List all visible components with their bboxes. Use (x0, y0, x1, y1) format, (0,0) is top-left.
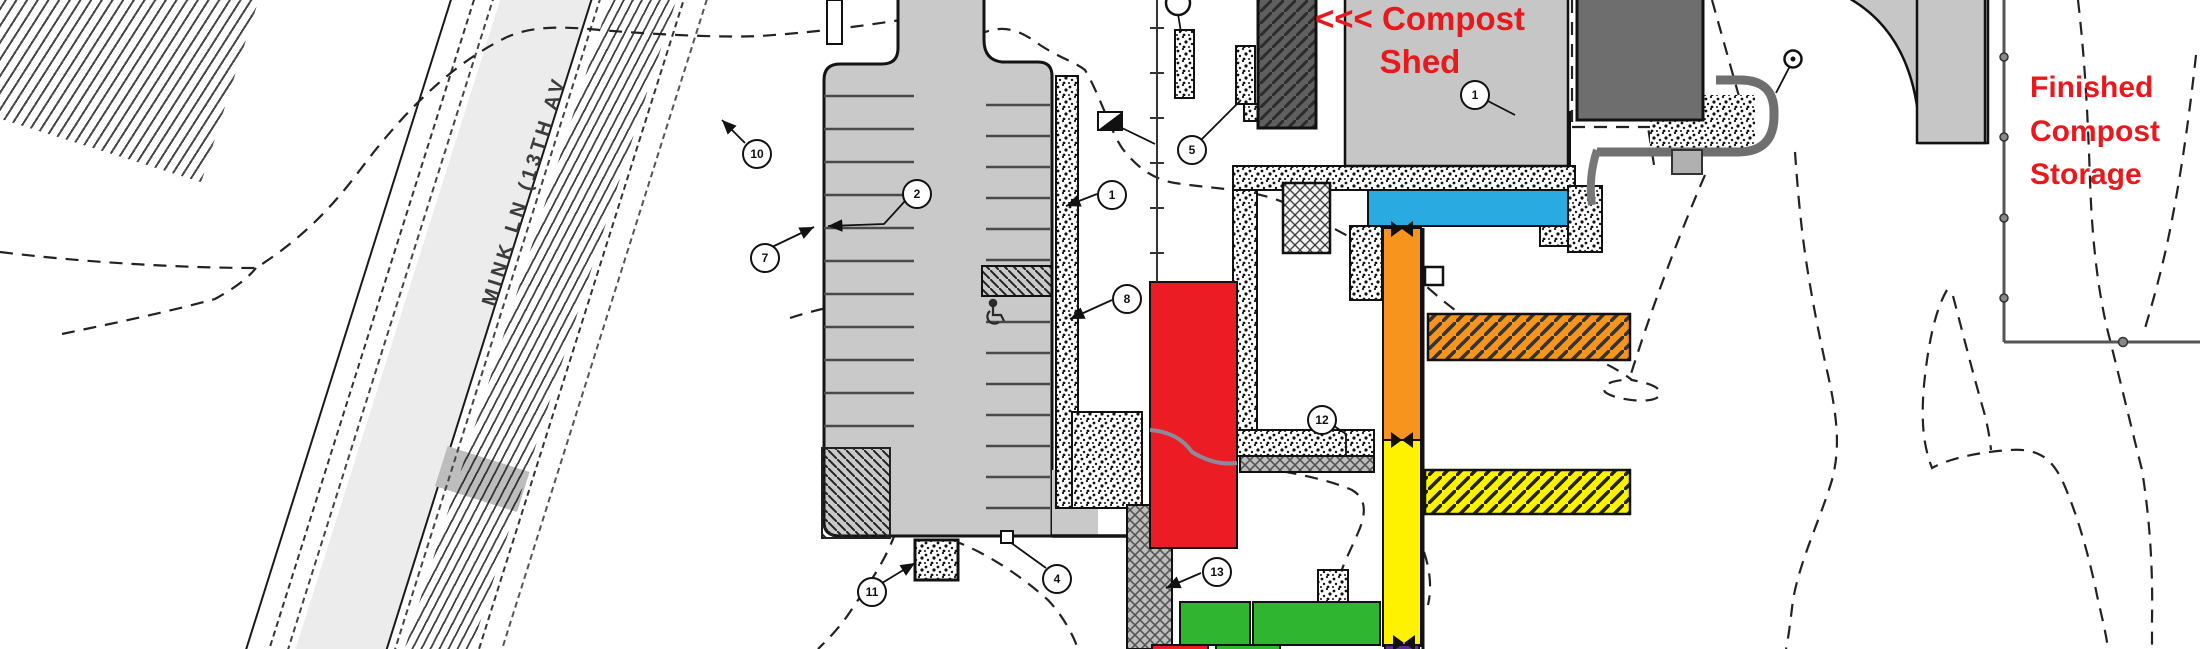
red-strip (1152, 645, 1208, 649)
blue-bay (1368, 190, 1568, 226)
green-bay-right (1253, 602, 1380, 645)
callout-building: 1 (1460, 80, 1490, 110)
callout-12: 12 (1307, 405, 1337, 435)
callout-8: 8 (1112, 284, 1142, 314)
callout-10: 10 (742, 139, 772, 169)
contour-lines (0, 0, 2196, 649)
orange-bay (1383, 228, 1421, 440)
arrow-left-icon: <<< (1315, 0, 1373, 37)
dark-building (1577, 0, 1703, 120)
callout-7: 7 (750, 243, 780, 273)
red-bay (1150, 282, 1237, 548)
finished-compost-annotation: Finished Compost Storage (2030, 66, 2160, 197)
storage-pad (1917, 0, 1985, 143)
small-structure (827, 0, 842, 44)
bin-structure (1283, 183, 1330, 253)
pipe-foot (1672, 150, 1702, 174)
callout-top-cut (1166, 0, 1190, 15)
plan-drawing-layer (0, 0, 2200, 649)
callout-1: 1 (1097, 180, 1127, 210)
callout-4: 4 (1042, 564, 1072, 594)
green-strip (1216, 645, 1280, 649)
callout-2: 2 (902, 179, 932, 209)
green-bay-left (1180, 602, 1250, 645)
yellow-hatched-bay (1425, 470, 1630, 514)
compost-shed-annotation: <<< Compost Shed (1295, 0, 1545, 84)
callout-5: 5 (1177, 135, 1207, 165)
yellow-bay (1383, 440, 1421, 646)
post-square (1425, 267, 1443, 285)
orange-hatched-bay (1428, 314, 1630, 360)
corner-hatch-area (822, 448, 890, 538)
callout-11: 11 (857, 577, 887, 607)
section-marker (1098, 112, 1122, 130)
detail-marker-square (1001, 531, 1013, 543)
callout-13: 13 (1202, 557, 1232, 587)
access-aisle-hatch (982, 266, 1052, 296)
site-plan: MINK LN (13TH AV (0, 0, 2200, 649)
